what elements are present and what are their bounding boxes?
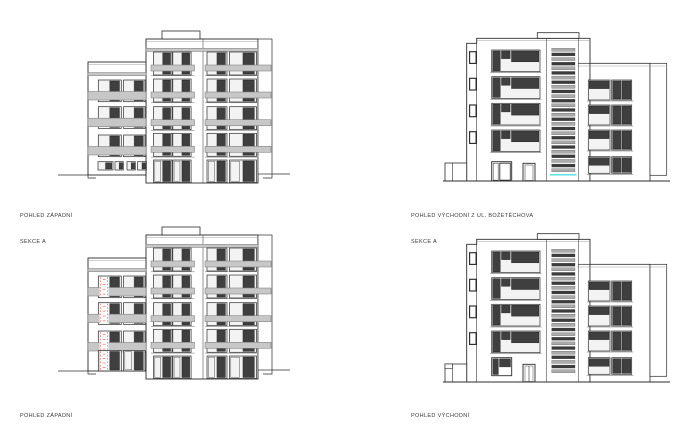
balcony-railing bbox=[205, 120, 271, 126]
balcony-railing bbox=[151, 146, 195, 152]
balcony-railing bbox=[151, 316, 195, 322]
balcony-railing bbox=[151, 120, 195, 126]
balcony-railing bbox=[205, 288, 271, 294]
balcony-railing bbox=[205, 342, 271, 348]
stair-glazing-slats bbox=[552, 249, 575, 252]
stair-side-window bbox=[470, 333, 477, 345]
label-title: POHLED VÝCHODNÍ bbox=[411, 412, 469, 421]
balcony-side-wall bbox=[258, 39, 272, 174]
label-east-bc: POHLED VÝCHODNÍ SEKCE B, C bbox=[411, 394, 469, 438]
balcony-railing bbox=[205, 65, 271, 71]
balcony-railing bbox=[88, 314, 146, 323]
stair-glazing-slats bbox=[552, 48, 575, 51]
stair-side-window bbox=[470, 132, 477, 144]
balcony-side-wall bbox=[258, 235, 272, 370]
roof-box bbox=[537, 234, 579, 240]
roof-box bbox=[537, 33, 579, 39]
balcony-railing bbox=[151, 261, 195, 267]
attic-trim bbox=[146, 244, 258, 247]
balcony-railing bbox=[205, 316, 271, 322]
label-section: SEKCE A bbox=[411, 238, 533, 247]
drawing-sheet: POHLED ZÁPADNÍ SEKCE A POHLED VÝCHODNÍ Z… bbox=[0, 0, 700, 438]
label-west-bc: POHLED ZÁPADNÍ SEKCE B, C bbox=[20, 394, 72, 438]
balcony-railing bbox=[151, 342, 195, 348]
stair-side-window bbox=[470, 279, 477, 291]
cellar-entry bbox=[445, 163, 467, 181]
balcony-railing bbox=[151, 92, 195, 98]
balcony-railing bbox=[88, 343, 146, 352]
label-west-a: POHLED ZÁPADNÍ SEKCE A bbox=[20, 194, 72, 264]
roof-box bbox=[162, 227, 200, 235]
stair-side-window bbox=[470, 105, 477, 117]
balcony-railing bbox=[88, 288, 146, 297]
balcony-railing bbox=[88, 92, 146, 101]
label-title: POHLED VÝCHODNÍ Z UL. BOŽETĚCHOVA bbox=[411, 212, 533, 221]
elevation-drawing-canvas bbox=[0, 0, 700, 438]
label-title: POHLED ZÁPADNÍ bbox=[20, 412, 72, 421]
balcony-railing bbox=[205, 146, 271, 152]
balcony-railing bbox=[88, 147, 146, 156]
balcony-railing bbox=[151, 65, 195, 71]
balcony-railing bbox=[205, 92, 271, 98]
stair-side-window bbox=[470, 52, 477, 64]
label-section: SEKCE A bbox=[20, 238, 72, 247]
stair-side-window bbox=[470, 78, 477, 90]
label-title: POHLED ZÁPADNÍ bbox=[20, 212, 72, 221]
elevation-east-section-a bbox=[443, 33, 670, 181]
attic-trim bbox=[146, 48, 258, 51]
stair-side-window bbox=[470, 306, 477, 318]
balcony-side-wall bbox=[650, 264, 667, 376]
label-east-a: POHLED VÝCHODNÍ Z UL. BOŽETĚCHOVA SEKCE … bbox=[411, 194, 533, 264]
balcony-railing bbox=[205, 261, 271, 267]
balcony-railing bbox=[151, 288, 195, 294]
roof-box bbox=[162, 31, 200, 39]
elevation-west-section-bc bbox=[58, 227, 290, 379]
balcony-side-wall bbox=[650, 63, 667, 175]
balcony-railing bbox=[88, 118, 146, 127]
elevation-west-section-a bbox=[58, 31, 290, 183]
